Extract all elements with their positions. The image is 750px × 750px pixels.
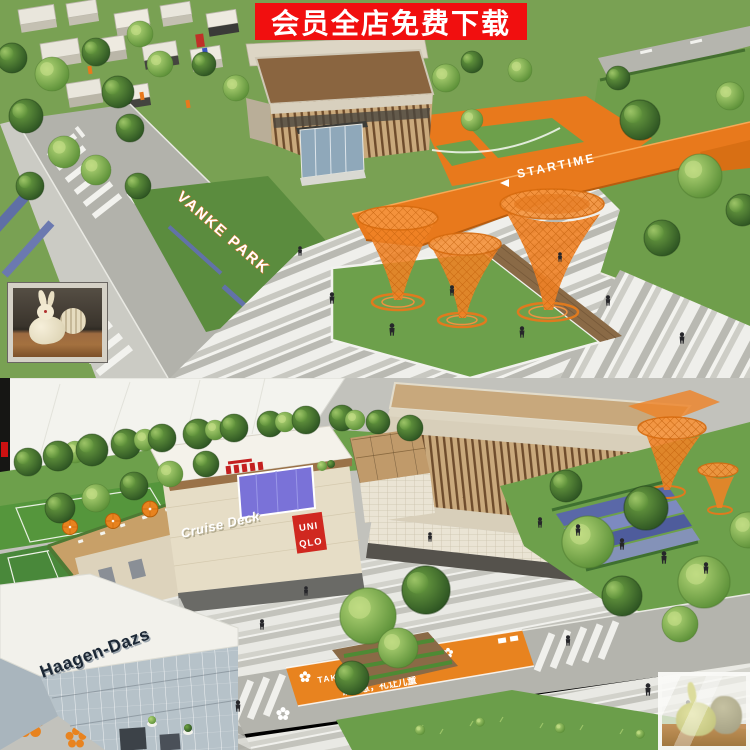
promo-banner: 会员全店免费下载: [255, 3, 527, 40]
watermark-fragment: [1, 442, 8, 457]
rabbit-eye: [44, 310, 47, 313]
render-top-aerial: VANKE PARK STARTIME: [0, 0, 750, 378]
promo-banner-text: 会员全店免费下载: [271, 2, 511, 42]
rabbit-figurine-photo-right: [658, 672, 750, 750]
rabbit-figurine-photo-left: [8, 283, 107, 362]
product-image: VANKE PARK STARTIME: [0, 0, 750, 750]
uniqlo-sign: UNI QLO: [292, 512, 327, 554]
rock-shape: [710, 696, 742, 734]
render-bottom-aerial: Cruise Deck Cruise Deck UNI QLO: [0, 378, 750, 750]
rabbit-ear: [686, 681, 698, 704]
photo-floor: [662, 724, 746, 746]
rabbit-body: [676, 702, 716, 736]
entrance-glass: [300, 124, 364, 178]
